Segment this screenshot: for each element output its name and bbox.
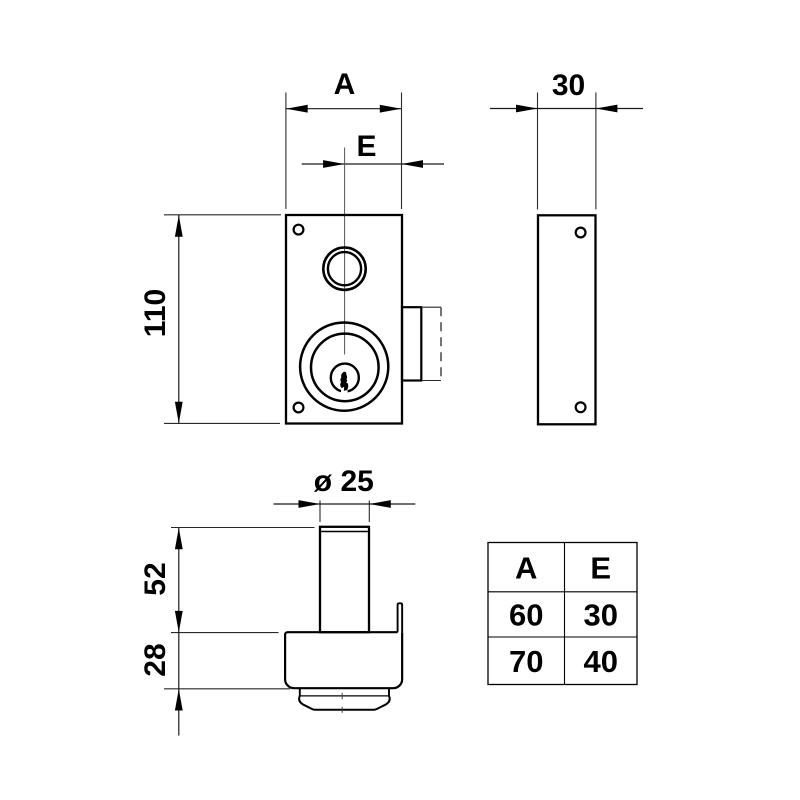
- svg-text:28: 28: [139, 643, 172, 676]
- svg-text:70: 70: [509, 644, 543, 679]
- svg-text:60: 60: [509, 598, 543, 633]
- svg-text:110: 110: [139, 289, 172, 337]
- svg-text:E: E: [356, 130, 376, 163]
- svg-text:E: E: [590, 551, 611, 586]
- svg-text:52: 52: [139, 562, 172, 595]
- svg-text:A: A: [515, 551, 537, 586]
- svg-text:40: 40: [583, 644, 617, 679]
- svg-text:30: 30: [552, 69, 585, 102]
- svg-text:30: 30: [583, 598, 617, 633]
- svg-text:A: A: [334, 68, 356, 101]
- svg-text:ø 25: ø 25: [314, 465, 374, 498]
